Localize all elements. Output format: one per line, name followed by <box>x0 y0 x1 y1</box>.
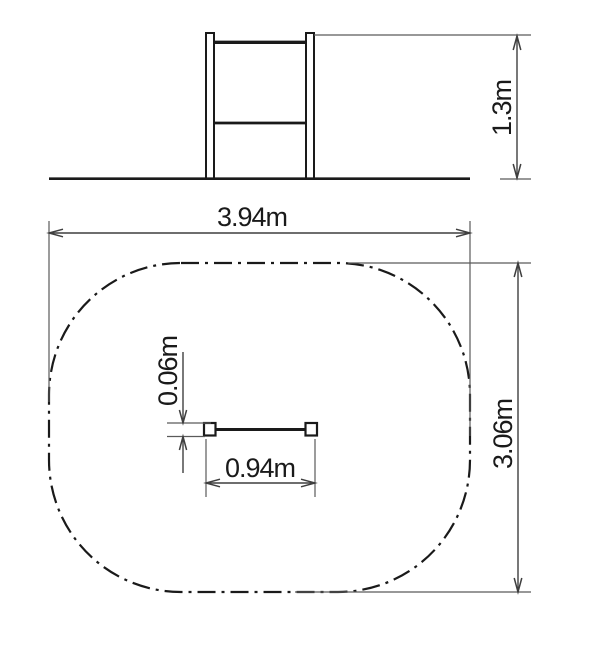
technical-drawing: 1.3m 3.94m 3.06m <box>0 0 600 663</box>
bar-top-view <box>204 423 317 436</box>
zone-width-dimension: 3.94m <box>49 202 470 436</box>
elevation-view: 1.3m <box>49 33 531 179</box>
zone-depth-dimension: 3.06m <box>295 263 531 592</box>
safety-zone-outline <box>49 263 470 592</box>
bar-length-dimension-label: 0.94m <box>225 453 295 483</box>
bar-length-dimension: 0.94m <box>206 439 315 497</box>
elevation-left-post <box>206 33 214 179</box>
bar-thickness-dimension-label: 0.06m <box>153 336 183 406</box>
zone-depth-dimension-label: 3.06m <box>488 399 518 469</box>
drawing-canvas: 1.3m 3.94m 3.06m <box>0 0 600 663</box>
elevation-right-post <box>306 33 314 179</box>
plan-view: 3.94m 3.06m <box>49 202 531 592</box>
zone-width-dimension-label: 3.94m <box>217 202 287 232</box>
bar-post-left <box>204 423 216 436</box>
height-dimension: 1.3m <box>314 35 531 179</box>
bar-thickness-dimension: 0.06m <box>153 336 211 473</box>
bar-post-right <box>306 423 318 436</box>
height-dimension-label: 1.3m <box>487 80 517 136</box>
